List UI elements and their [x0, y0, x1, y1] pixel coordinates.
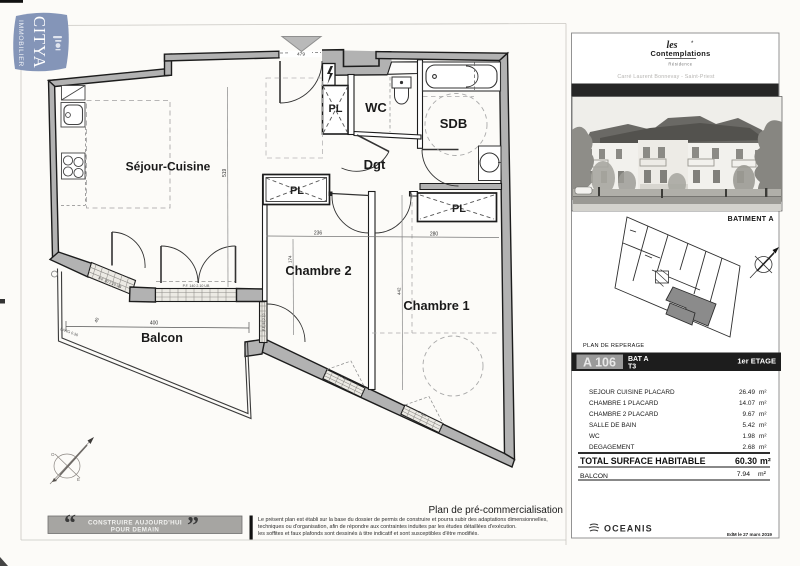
svg-text:Dgt: Dgt	[364, 157, 386, 172]
svg-text:m²: m²	[759, 444, 766, 451]
svg-text:“: “	[64, 511, 76, 537]
svg-text:m²: m²	[759, 422, 766, 429]
svg-text:Plan de pré-commercialisation: Plan de pré-commercialisation	[428, 505, 563, 516]
svg-text:m²: m²	[759, 389, 766, 396]
svg-text:Résidence: Résidence	[668, 62, 692, 67]
svg-text:A 106: A 106	[583, 356, 616, 370]
svg-text:SEJOUR CUISINE PLACARD: SEJOUR CUISINE PLACARD	[589, 389, 675, 396]
svg-text:P.F. 90 2.10: P.F. 90 2.10	[262, 313, 266, 331]
svg-text:PL: PL	[328, 103, 342, 115]
svg-text:CHAMBRE 1 PLACARD: CHAMBRE 1 PLACARD	[589, 400, 659, 407]
svg-text:”: ”	[187, 513, 199, 539]
svg-text:m²: m²	[759, 411, 766, 418]
svg-text:Le présent plan est établi sur: Le présent plan est établi sur la base d…	[258, 517, 548, 523]
svg-text:7.94: 7.94	[737, 471, 750, 478]
svg-text:1er ETAGE: 1er ETAGE	[737, 357, 776, 366]
svg-text:BATIMENT A: BATIMENT A	[728, 216, 774, 223]
svg-text:5.42: 5.42	[743, 422, 756, 429]
svg-text:9.67: 9.67	[743, 411, 756, 418]
svg-text:m²: m²	[759, 433, 766, 440]
svg-text:WC: WC	[589, 433, 600, 440]
svg-text:les soffites et faux plafonds: les soffites et faux plafonds sont dessi…	[258, 531, 479, 537]
svg-text:Balcon: Balcon	[141, 331, 183, 345]
svg-text:Contemplations: Contemplations	[650, 49, 710, 58]
svg-text:m²: m²	[760, 456, 771, 466]
svg-text:400: 400	[150, 321, 159, 327]
svg-text:2.68: 2.68	[743, 444, 756, 451]
svg-text:IMMOBILIER: IMMOBILIER	[17, 20, 24, 67]
svg-text:EdM le 27 mars 2019: EdM le 27 mars 2019	[727, 532, 772, 537]
svg-text:CHAMBRE 2 PLACARD: CHAMBRE 2 PLACARD	[589, 411, 659, 418]
svg-text:519: 519	[222, 168, 228, 177]
svg-text:WC: WC	[365, 100, 387, 115]
svg-text:SDB: SDB	[440, 116, 467, 131]
svg-text:174: 174	[288, 255, 293, 263]
svg-text:Carré Laurent Bonnevay - Saint: Carré Laurent Bonnevay - Saint-Priest	[617, 74, 715, 80]
svg-text:14.07: 14.07	[739, 400, 755, 407]
svg-text:Séjour-Cuisine: Séjour-Cuisine	[126, 160, 211, 174]
svg-text:SALLE DE BAIN: SALLE DE BAIN	[589, 422, 637, 429]
svg-text:Chambre 1: Chambre 1	[403, 298, 469, 313]
svg-text:m²: m²	[758, 471, 767, 478]
svg-text:280: 280	[430, 232, 439, 238]
svg-text:T3: T3	[628, 364, 636, 371]
svg-text:40: 40	[93, 316, 100, 323]
svg-text:PLAN DE REPERAGE: PLAN DE REPERAGE	[583, 343, 644, 349]
svg-text:m²: m²	[759, 400, 766, 407]
svg-text:DEGAGEMENT: DEGAGEMENT	[589, 444, 635, 451]
svg-text:1.98: 1.98	[743, 433, 756, 440]
svg-text:60.30: 60.30	[735, 456, 757, 466]
svg-text:BAT A: BAT A	[628, 356, 649, 363]
svg-text:E: E	[77, 477, 80, 482]
svg-text:26.49: 26.49	[739, 389, 755, 396]
svg-text:TOTAL SURFACE HABITABLE: TOTAL SURFACE HABITABLE	[580, 456, 706, 466]
svg-text:CITYA: CITYA	[30, 16, 49, 69]
svg-text:PL: PL	[452, 203, 466, 215]
svg-text:CONSTRUIRE AUJOURD'HUI: CONSTRUIRE AUJOURD'HUI	[88, 520, 182, 527]
svg-text:O: O	[51, 452, 55, 457]
svg-text:Chambre 2: Chambre 2	[285, 263, 351, 278]
svg-text:OCEANIS: OCEANIS	[604, 524, 653, 534]
svg-text:POUR DEMAIN: POUR DEMAIN	[111, 527, 160, 534]
svg-text:techniques ou d'organisation,: techniques ou d'organisation, afin de ré…	[258, 524, 517, 530]
svg-text:479: 479	[297, 52, 305, 58]
svg-text:P.F. 140 2.10 UB: P.F. 140 2.10 UB	[183, 284, 210, 288]
svg-text:236: 236	[314, 231, 323, 237]
svg-text:PL: PL	[290, 185, 304, 197]
svg-text:442: 442	[397, 287, 402, 295]
svg-text:BALCON: BALCON	[580, 473, 608, 480]
